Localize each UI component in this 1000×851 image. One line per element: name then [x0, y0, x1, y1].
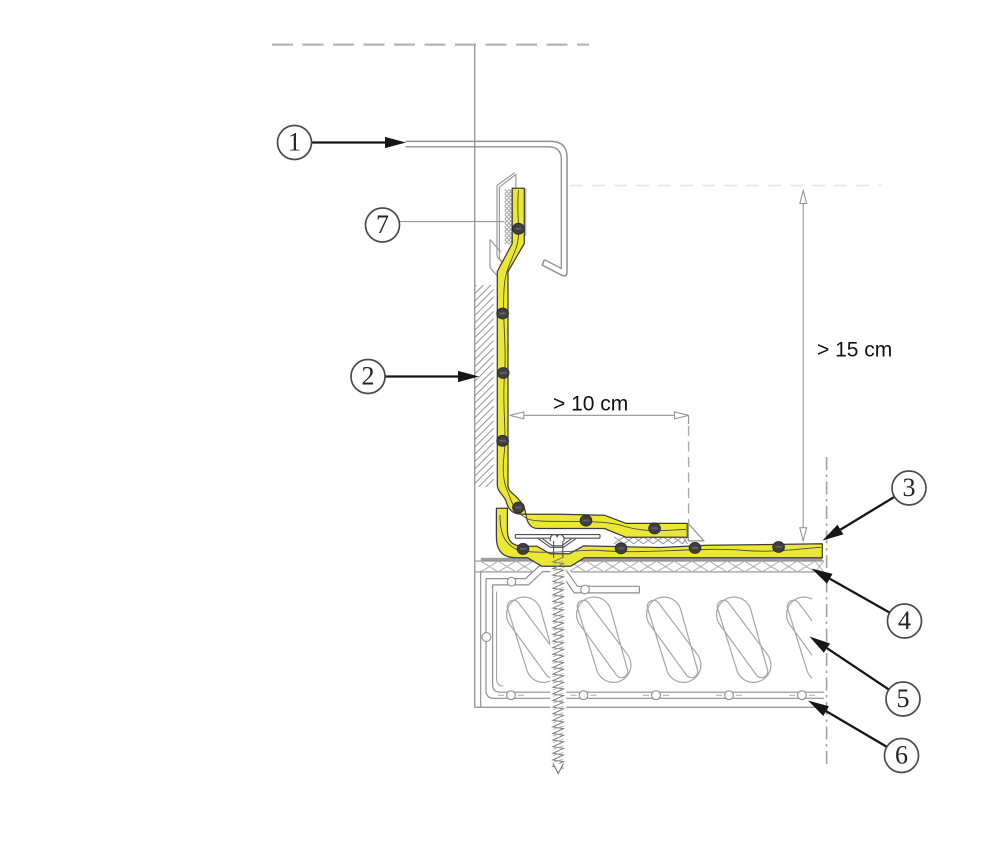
svg-text:6: 6: [895, 741, 908, 770]
svg-text:3: 3: [903, 473, 916, 502]
svg-text:1: 1: [288, 128, 301, 157]
svg-text:5: 5: [897, 684, 910, 713]
svg-text:7: 7: [376, 210, 389, 239]
svg-text:> 10 cm: > 10 cm: [553, 393, 628, 416]
svg-text:2: 2: [362, 362, 375, 391]
svg-text:4: 4: [898, 606, 911, 635]
svg-text:> 15 cm: > 15 cm: [817, 339, 892, 362]
